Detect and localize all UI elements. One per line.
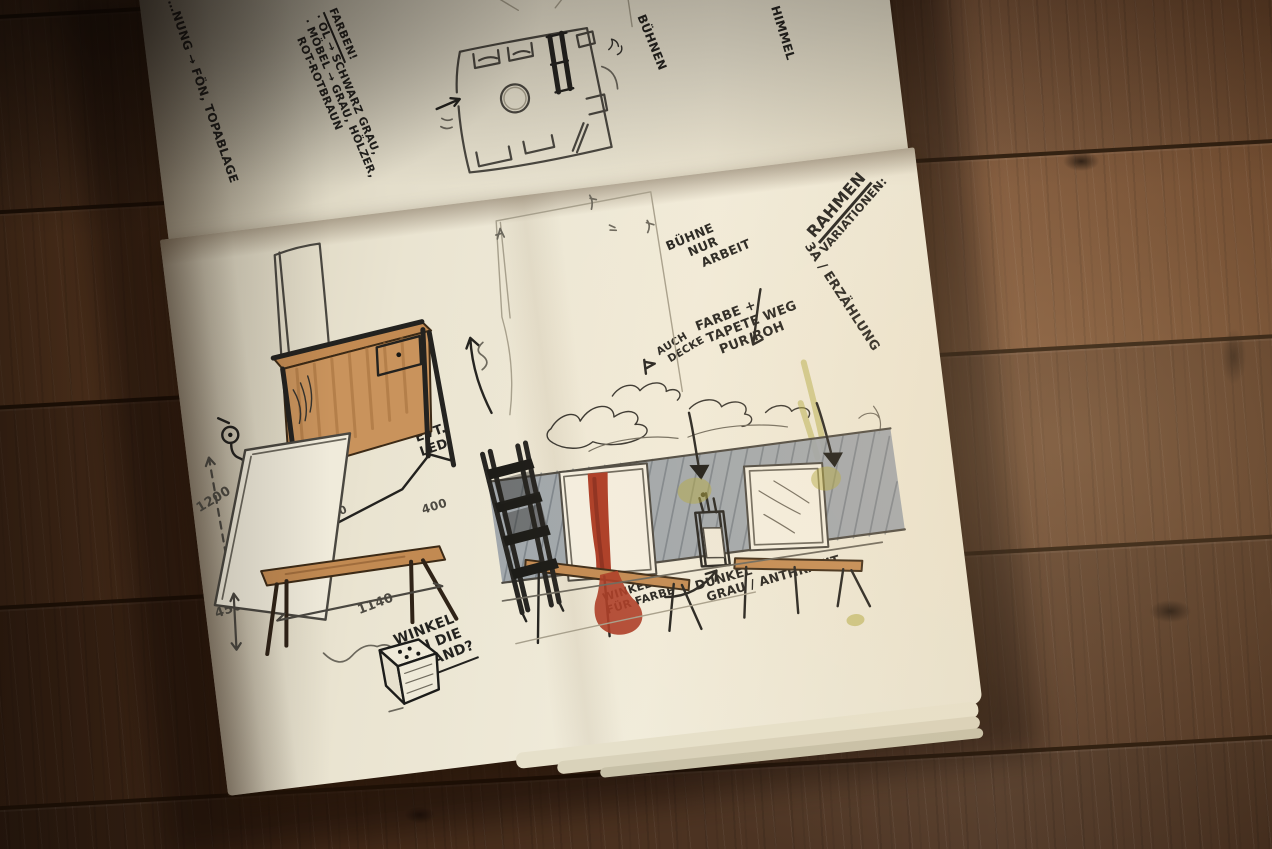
round-table (499, 83, 530, 114)
shelf-unit (547, 29, 601, 92)
floor-plan-sketch (416, 0, 656, 213)
door-swing (599, 38, 627, 90)
spine-note: …NUNG → FÖN, TOPABLAGE (164, 0, 240, 185)
dice-cube (379, 638, 442, 706)
sky-label: HIMMEL (767, 4, 796, 62)
sketchbook-main-page: RAHMEN VARIATIONEN: BÜHNE NUR ARBEIT 3A … (160, 147, 983, 795)
colors-note: FARBEN! · ÖL → SCHWARZ GRAU, · MÖBEL → G… (289, 6, 405, 185)
wall-scene-sketch (438, 152, 933, 682)
leaning-panel (196, 433, 372, 633)
photo-of-sketchbook-on-wood-floor: …NUNG → FÖN, TOPABLAGE FARBEN! · ÖL → SC… (0, 0, 1272, 849)
curved-arrow-icon (465, 336, 493, 415)
dice-sketch (318, 608, 459, 723)
benches-bottom (471, 94, 612, 166)
